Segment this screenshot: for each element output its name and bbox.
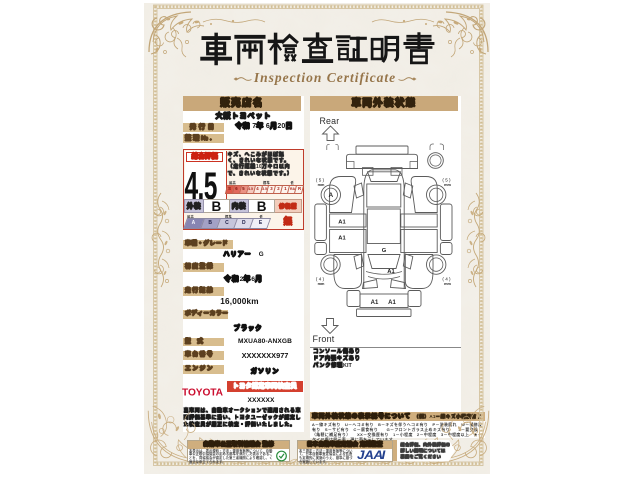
svg-text:( 5 ): ( 5 )	[316, 178, 325, 183]
svg-text:mm: mm	[318, 183, 325, 187]
svg-text:G: G	[382, 248, 387, 254]
svg-text:( 4 ): ( 4 )	[442, 277, 451, 282]
svg-text:A1: A1	[388, 300, 396, 306]
svg-text:A1: A1	[387, 269, 395, 275]
svg-text:A: A	[328, 192, 333, 199]
svg-text:A1: A1	[338, 236, 346, 242]
svg-text:A1: A1	[371, 300, 379, 306]
svg-text:mm: mm	[444, 282, 451, 286]
svg-text:( 5 ): ( 5 )	[442, 178, 451, 183]
svg-text:A1: A1	[338, 220, 346, 226]
svg-text:mm: mm	[318, 282, 325, 286]
svg-text:( 4 ): ( 4 )	[316, 277, 325, 282]
svg-text:mm: mm	[444, 183, 451, 187]
